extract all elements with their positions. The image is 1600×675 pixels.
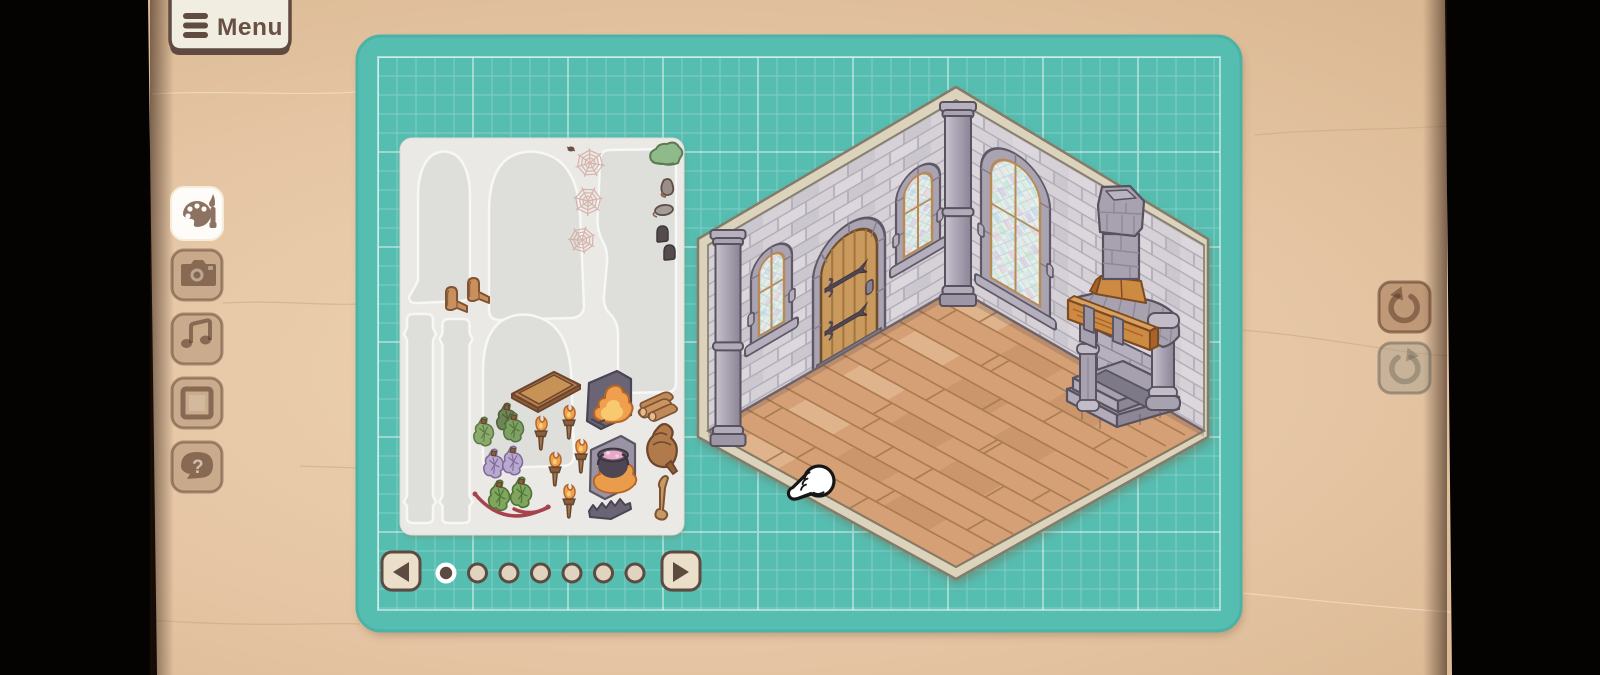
svg-text:?: ? <box>192 457 204 478</box>
svg-text:Menu: Menu <box>217 14 283 41</box>
